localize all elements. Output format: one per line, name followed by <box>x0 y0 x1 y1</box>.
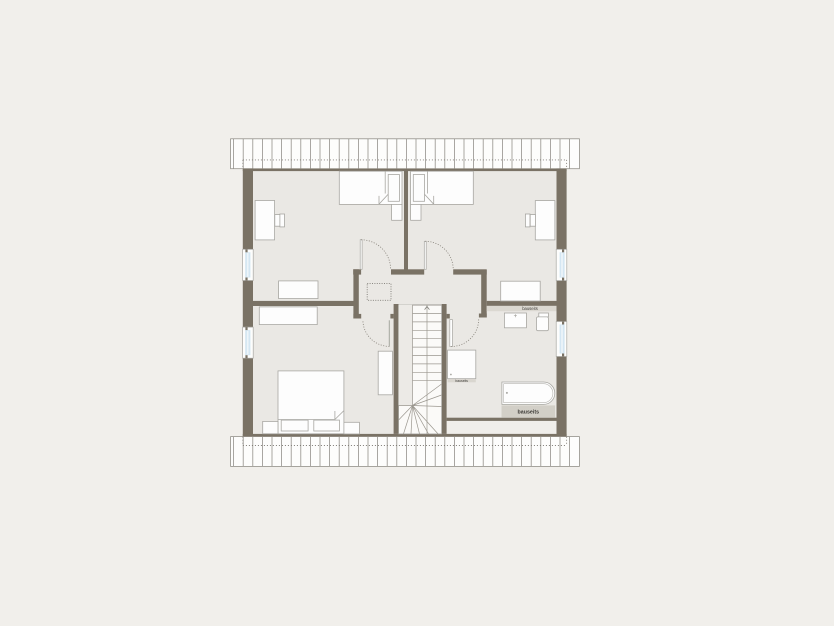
svg-text:bauseits: bauseits <box>518 409 540 415</box>
svg-text:bauseits: bauseits <box>522 306 538 311</box>
svg-text:bauseits: bauseits <box>455 379 468 383</box>
